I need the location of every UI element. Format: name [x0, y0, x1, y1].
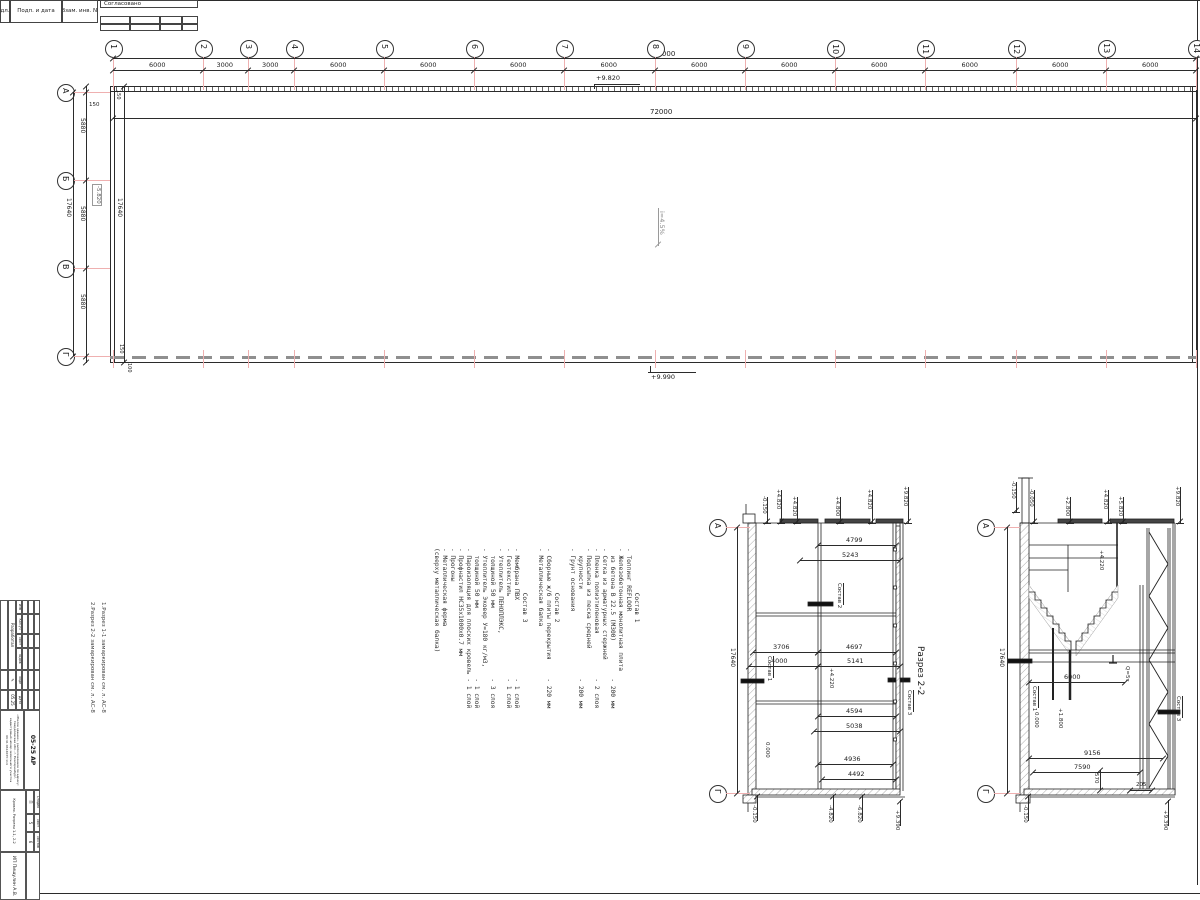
graphic	[894, 548, 897, 551]
axis-col-line	[1196, 57, 1197, 90]
plan-row-inner-line	[124, 86, 125, 363]
axis-col-line-bottom	[925, 350, 926, 368]
elev-label: +9.820	[902, 486, 908, 506]
elev-label: +5.820	[1117, 496, 1123, 516]
elev-leader	[757, 795, 758, 821]
section-dim-label: 570	[1093, 773, 1099, 784]
stamp-change-cell	[22, 648, 28, 670]
row-chain-tick	[83, 359, 89, 365]
axis-col-line-bottom	[1106, 350, 1107, 368]
section-note-leader	[913, 690, 914, 712]
axis-col-line-bottom	[203, 350, 204, 368]
axis-col-number: 2	[199, 44, 207, 49]
section-chain-label: 17640	[729, 648, 735, 667]
axis-row-line	[74, 180, 110, 181]
section-note-label: 0.000	[764, 742, 770, 758]
elev-label: -0.150	[761, 496, 767, 514]
stamp-change-cell	[28, 634, 34, 648]
axis-col-number: 3	[244, 44, 252, 49]
stamp-change-cell	[22, 600, 28, 614]
section-axis-letter: А	[981, 523, 989, 528]
bottom-offset2-label: 100	[126, 363, 131, 373]
stamp-empty-role2	[0, 600, 8, 670]
plan-spacing-label: 6000	[871, 62, 888, 69]
stamp-stage-value: 5	[26, 814, 34, 832]
axis-col-line	[1106, 57, 1107, 90]
stamp-change-cell	[28, 648, 34, 670]
elev-label: +4.820	[866, 489, 872, 509]
axis-col-line-bottom	[294, 350, 295, 368]
bottom-offset-label: 150	[118, 344, 123, 354]
stamp-date: 05.25	[8, 690, 16, 710]
plan-level-box: -5.820	[93, 184, 103, 206]
stamp-change-cell	[34, 690, 40, 710]
section-axis-letter: Г	[981, 789, 989, 794]
section-dim-label: 3706	[773, 644, 790, 651]
axis-col-line	[925, 57, 926, 90]
elev-label: -0.150	[1010, 481, 1016, 499]
axis-row-line	[74, 92, 110, 93]
section-dim-label: 5038	[846, 723, 863, 730]
section-axis-letter: Г	[713, 789, 721, 794]
stamp-header-cell: Кол.уч	[16, 614, 22, 634]
axis-col-line	[835, 57, 836, 90]
title-stamp-rotated: ИзмКол.учЛист№докПодпДата Разработал ✎ 0…	[0, 600, 40, 900]
row-spacing-label: 5880	[79, 206, 85, 221]
stamp-doc-code: 05-25 АР	[24, 710, 40, 790]
elev-top-leader	[594, 84, 640, 85]
approved-box: Согласовано	[100, 0, 198, 8]
elev-label: +2.800	[1064, 496, 1070, 516]
title-stamp: ИзмКол.учЛист№докПодпДата Разработал ✎ 0…	[0, 600, 40, 900]
approved-grid-cell	[100, 16, 130, 24]
elev-leader	[1168, 800, 1169, 826]
stamp-stage-header: Стадия	[34, 790, 40, 814]
row-inner-total-label: 17640	[116, 198, 122, 217]
graphic	[894, 738, 897, 741]
stamp-empty-date2	[0, 690, 8, 710]
stamp-stage-header: Листов	[34, 832, 40, 852]
axis-row-letter: В	[61, 264, 69, 270]
section-dim-label: 4936	[844, 756, 861, 763]
plan-slope-label: i=4.5%	[659, 211, 666, 235]
axis-col-line	[1016, 57, 1017, 90]
axis-row-letter: Г	[61, 352, 69, 357]
elev-label: +4.800	[834, 496, 840, 516]
axis-col-line-bottom	[745, 350, 746, 368]
section-note-label: Состав 3	[1175, 696, 1181, 721]
stamp-change-cell	[34, 614, 40, 634]
plan-spacing-label: 6000	[1142, 62, 1159, 69]
plan-left-edge	[110, 86, 111, 363]
elev-label: -0.050	[1028, 489, 1034, 507]
section-chain-line	[1007, 527, 1008, 793]
section-2-2-title: Разрез 2-2	[915, 646, 924, 695]
axis-col-line-bottom	[384, 350, 385, 368]
approved-grid-cell	[182, 16, 198, 24]
materials-notes-text: Состав 1 - Топпинг REFLOOR - Железобетон…	[424, 548, 640, 748]
elev-label: +9.390	[894, 810, 900, 830]
row-total-label: 17640	[65, 198, 71, 217]
section-note-label: Состав 3	[906, 690, 912, 715]
approved-grid-cell	[160, 16, 182, 24]
graphic	[825, 519, 870, 523]
section-note-label: +4.220	[1098, 550, 1104, 570]
stamp-change-cell	[34, 634, 40, 648]
materials-notes-block: Состав 1 - Топпинг REFLOOR - Железобетон…	[424, 548, 640, 756]
stamp-change-cell	[28, 614, 34, 634]
plan-spacing-label: 6000	[691, 62, 708, 69]
plan-left-edge2	[114, 86, 115, 363]
stamp-header-cell: Изм	[16, 600, 22, 614]
axis-col-number: 4	[290, 44, 298, 49]
stamp-empty-top-right	[26, 852, 40, 900]
elev-label: -0.150	[751, 805, 757, 823]
approved-grid-cell	[100, 24, 130, 32]
section-note-label: Состав 1	[1031, 686, 1037, 711]
section-note-label: +4.220	[828, 668, 834, 688]
axis-col-line	[248, 57, 249, 90]
slope-arrow-line	[658, 208, 659, 246]
section-dim-line	[753, 652, 818, 653]
axis-col-number: 12	[1012, 44, 1020, 54]
axis-row-line	[74, 268, 110, 269]
section-dim-line	[1130, 790, 1152, 791]
graphic	[896, 526, 900, 791]
elev-label: -6.820	[856, 805, 862, 823]
elev-leader	[1028, 795, 1029, 821]
graphic	[894, 624, 897, 627]
header-cell-inv: дл.	[0, 0, 10, 23]
elev-bottom-leader	[648, 372, 696, 373]
stamp-header-cell: Подп	[16, 670, 22, 690]
graphic: 1.Разрез 1-1 замаркирован см. л. АС-8 2.…	[86, 602, 108, 742]
axis-col-number: 13	[1102, 43, 1110, 53]
section-note-leader	[843, 583, 844, 605]
section-dim-line	[818, 545, 896, 546]
axis-col-number: 6	[470, 44, 478, 49]
elev-label: -0.150	[1022, 805, 1028, 823]
side-note-block: 1.Разрез 1-1 замаркирован см. л. АС-8 2.…	[86, 602, 110, 742]
elev-leader	[908, 487, 909, 523]
header-cell-podp-label: Подп. и дата	[17, 8, 54, 14]
section-dim-line	[1033, 772, 1140, 773]
axis-row-line	[74, 356, 110, 357]
elev-leader	[1180, 487, 1181, 523]
plan-bottom-dashed-edge	[110, 356, 1196, 359]
section-chain-label: 17640	[998, 648, 1004, 667]
axis-col-number: 5	[380, 44, 388, 49]
graphic	[1149, 532, 1168, 788]
graphic	[1008, 478, 1180, 812]
stamp-change-cell	[22, 690, 28, 710]
stamp-change-cell	[34, 600, 40, 614]
section-dim-line	[818, 716, 896, 717]
header-cell-podp: Подп. и дата	[10, 0, 62, 23]
plan-spacing-dim-line	[113, 70, 1196, 71]
axis-row-letter: Б	[61, 176, 69, 182]
graphic	[748, 523, 756, 795]
axis-col-line-bottom	[1016, 350, 1017, 368]
section-note-label: Состав 1	[766, 656, 772, 681]
stamp-header-cell: Дата	[16, 690, 22, 710]
stamp-signature: ✎	[8, 670, 16, 690]
elev-leader	[833, 795, 834, 821]
stamp-change-cell	[28, 600, 34, 614]
plan-top-edge2	[110, 91, 1196, 92]
section-note-leader	[1038, 686, 1039, 708]
stamp-company: ИП Пищулин А.В.	[0, 852, 26, 900]
plan-row-total-line	[73, 92, 74, 356]
section-dim-line	[814, 731, 900, 732]
plan-spacing-label: 6000	[962, 62, 979, 69]
section-dim-label: 7590	[1074, 764, 1091, 771]
section-dim-label: 9156	[1084, 750, 1101, 757]
plan-spacing-label: 3000	[217, 62, 234, 69]
slope-arrow-head	[655, 241, 661, 247]
drawing-sheet: дл. Подп. и дата Взам. инв. № Согласован…	[0, 0, 1200, 900]
section-1-1-drawing	[980, 460, 1200, 840]
graphic	[894, 586, 897, 589]
graphic	[1008, 659, 1032, 663]
plan-spacing-label: 6000	[510, 62, 527, 69]
graphic	[1058, 519, 1102, 523]
plan-spacing-label: 6000	[420, 62, 437, 69]
section-dim-label: 5141	[847, 658, 864, 665]
row-spacing-label: 5880	[79, 118, 85, 133]
section-axis-bubble	[709, 785, 727, 803]
stamp-project-name: «Жилое здание», расположенное по адресу:…	[0, 710, 24, 790]
section-dim-label: 4799	[846, 537, 863, 544]
elev-leader	[862, 795, 863, 821]
stamp-stage-header: Лист	[34, 814, 40, 832]
axis-col-line	[203, 57, 204, 90]
axis-col-number: 10	[831, 44, 839, 54]
plan-row-chain-line	[86, 86, 87, 363]
row-offset-150: 150	[89, 103, 100, 109]
section-axis-letter: А	[713, 523, 721, 528]
stamp-change-cell	[22, 634, 28, 648]
section-dim-line	[822, 779, 896, 780]
section-dim-label: 6000	[1064, 674, 1081, 681]
section-dim-line	[818, 764, 893, 765]
stamp-empty-sign2	[0, 670, 8, 690]
axis-col-number: 1	[109, 44, 117, 49]
section-dim-line	[1029, 682, 1125, 683]
stamp-role: Разработал	[8, 600, 16, 670]
graphic	[894, 662, 897, 665]
section-dim-label: 205	[1136, 783, 1147, 789]
axis-col-line	[294, 57, 295, 90]
stamp-header-cell: Лист	[16, 634, 22, 648]
axis-row-letter: А	[61, 88, 69, 93]
section-note-label: 0.000	[1033, 712, 1039, 728]
section-chain-line	[737, 527, 738, 793]
axis-col-number: 8	[651, 44, 659, 49]
plan-total-dim-inner: 72000	[650, 109, 672, 116]
row-spacing-label: 5880	[79, 294, 85, 309]
elev-label: +4.820	[775, 489, 781, 509]
graphic	[741, 679, 764, 683]
axis-col-line-bottom	[655, 350, 656, 368]
axis-col-line-bottom	[1196, 350, 1197, 368]
stamp-change-cell	[22, 614, 28, 634]
section-note-leader	[1182, 696, 1183, 718]
section-note-label: +1.800	[1057, 708, 1063, 728]
stamp-header-cell: №док	[16, 648, 22, 670]
elev-leader	[900, 800, 901, 826]
header-cell-vzam: Взам. инв. №	[62, 0, 98, 23]
approved-grid-cell	[182, 24, 198, 32]
plan-right-edge	[1192, 86, 1193, 363]
axis-col-line	[655, 57, 656, 90]
plan-spacing-label: 6000	[781, 62, 798, 69]
stamp-change-cell	[34, 648, 40, 670]
side-note-line2: 2.Разрез 2-2 замаркирован см. л. АС-8	[86, 602, 97, 742]
plan-elevation-bottom: +9.990	[651, 374, 675, 381]
axis-col-number: 9	[741, 44, 749, 49]
stamp-stage-value: 6	[26, 832, 34, 852]
stamp-change-cell	[34, 670, 40, 690]
graphic	[894, 700, 897, 703]
section-dim-line	[818, 666, 900, 667]
header-cell-inv-label: дл.	[0, 8, 9, 14]
graphic	[752, 789, 900, 795]
section-axis-bubble	[977, 785, 995, 803]
elev-label: +9.820	[1174, 486, 1180, 506]
axis-col-line-bottom	[835, 350, 836, 368]
approved-grid-cell	[130, 24, 160, 32]
stamp-sheet-name: Кровля. Разрезы 1-1, 2-2	[0, 790, 26, 852]
section-dim-label: 4697	[846, 644, 863, 651]
header-cell-vzam-label: Взам. инв. №	[62, 8, 98, 14]
elev-label: +4.820	[1102, 489, 1108, 509]
axis-col-line-bottom	[564, 350, 565, 368]
axis-col-line-bottom	[113, 350, 114, 368]
section-note-leader	[773, 656, 774, 678]
elev-label: -4.820	[827, 805, 833, 823]
axis-col-line-bottom	[248, 350, 249, 368]
plan-elevation-top: +9.820	[596, 75, 620, 82]
graphic	[876, 519, 903, 523]
approved-grid-cell	[160, 24, 182, 32]
corner-offset-label: 150	[115, 90, 120, 100]
axis-col-number: 7	[560, 44, 568, 49]
axis-col-number: 11	[921, 44, 929, 54]
section-dim-line	[749, 666, 818, 667]
section-dim-label: 5243	[842, 552, 859, 559]
stamp-stage-value: П	[26, 790, 34, 814]
side-note-line1: 1.Разрез 1-1 замаркирован см. л. АС-8	[97, 602, 108, 742]
section-note-label: Состав 2	[836, 583, 842, 608]
axis-col-number: 14	[1192, 43, 1200, 53]
plan-inner-dim-line	[113, 118, 1196, 119]
graphic	[743, 514, 755, 523]
section-dim-line	[800, 560, 900, 561]
axis-col-line	[745, 57, 746, 90]
frame-bottom-line	[0, 893, 1200, 894]
section-dim-line	[818, 652, 896, 653]
section-dim-label: 4594	[846, 708, 863, 715]
section-dim-label: 4492	[848, 771, 865, 778]
elev-label: +9.390	[1162, 810, 1168, 830]
plan-spacing-label: 3000	[262, 62, 279, 69]
section-note-label: Q=5т	[1124, 666, 1130, 682]
axis-col-line	[384, 57, 385, 90]
plan-total-dim-line	[113, 58, 1196, 59]
plan-bottom-edge	[110, 362, 1196, 363]
section-dim-line	[1029, 758, 1163, 759]
plan-right-edge2	[1196, 86, 1197, 363]
axis-col-line	[113, 57, 114, 90]
graphic	[808, 602, 833, 606]
stamp-change-cell	[28, 690, 34, 710]
stamp-change-cell	[22, 670, 28, 690]
approved-label: Согласовано	[104, 1, 141, 7]
plan-spacing-label: 6000	[149, 62, 166, 69]
elev-label: +4.820	[791, 496, 797, 516]
stamp-change-cell	[28, 670, 34, 690]
axis-col-line	[474, 57, 475, 90]
approved-grid-cell	[130, 16, 160, 24]
plan-spacing-label: 6000	[601, 62, 618, 69]
elev-bottom-tick	[650, 366, 651, 372]
axis-col-line	[564, 57, 565, 90]
axis-col-line-bottom	[474, 350, 475, 368]
plan-spacing-label: 6000	[1052, 62, 1069, 69]
plan-spacing-label: 6000	[330, 62, 347, 69]
